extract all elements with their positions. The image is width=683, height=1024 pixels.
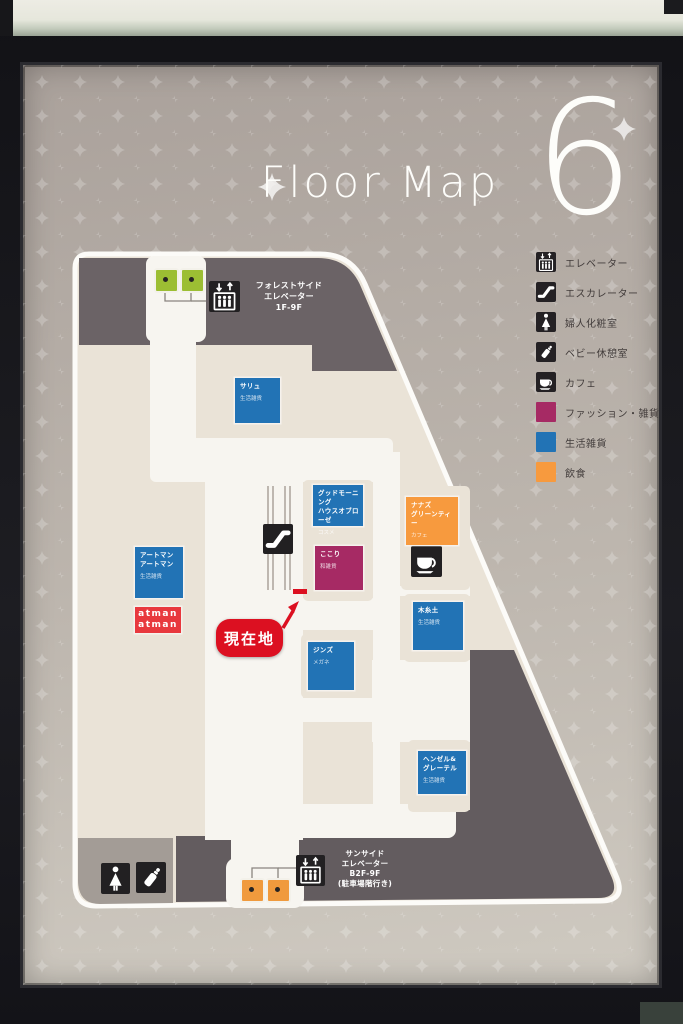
store-kiitotsuchi: 木糸土 生活雑貨 xyxy=(413,602,463,650)
store-category: 生活雑貨 xyxy=(240,394,278,402)
atman-logo-box: atman atman xyxy=(135,607,181,633)
legend-item-cafe: カフェ xyxy=(536,372,660,392)
baby-room-icon xyxy=(136,862,166,893)
legend-label: エスカレーター xyxy=(565,285,639,300)
store-name: サリュ xyxy=(240,382,278,391)
store-category: コスメ xyxy=(318,528,361,536)
store-category: 生活雑貨 xyxy=(423,776,464,784)
cafe-icon xyxy=(536,372,556,392)
store-name: ヘンゼル& グレーテル xyxy=(423,755,464,773)
elevator-car-green xyxy=(180,268,205,293)
store-goodmorning-house-of-rose: グッドモーニング ハウスオブローゼ コスメ xyxy=(313,485,363,526)
legend-label: ファッション・雑貨 xyxy=(565,405,660,420)
legend-label: 飲食 xyxy=(565,465,586,480)
legend-item-powder-room: 婦人化粧室 xyxy=(536,312,660,332)
legend: エレベーター エスカレーター 婦人化粧室 xyxy=(536,252,660,492)
legend-label: 婦人化粧室 xyxy=(565,315,618,330)
legend-label: カフェ xyxy=(565,375,597,390)
elevator-car-orange xyxy=(266,878,291,903)
elevator-icon xyxy=(536,252,556,272)
fashion-color-swatch xyxy=(536,402,556,422)
store-nanas-green-tea: ナナズ グリーンティー カフェ xyxy=(406,497,458,545)
floor-map-photo: Floor Map 6 xyxy=(0,0,683,1024)
legend-item-baby-room: ベビー休憩室 xyxy=(536,342,660,362)
current-location-badge: 現在地 xyxy=(216,619,283,657)
elevator-car-orange xyxy=(240,878,265,903)
store-name: アートマン アートマン xyxy=(140,551,181,569)
powder-room-icon xyxy=(101,863,130,894)
legend-item-escalator: エスカレーター xyxy=(536,282,660,302)
store-artman-artman: アートマン アートマン 生活雑貨 xyxy=(135,547,183,598)
escalator-icon xyxy=(536,282,556,302)
forest-side-elevator-label: フォレストサイド エレベーター 1F-9F xyxy=(243,281,335,313)
store-name: グッドモーニング ハウスオブローゼ xyxy=(318,489,361,525)
legend-item-elevator: エレベーター xyxy=(536,252,660,272)
store-jins: ジンズ メガネ xyxy=(308,642,354,690)
food-color-swatch xyxy=(536,462,556,482)
legend-item-fashion: ファッション・雑貨 xyxy=(536,402,660,422)
baby-room-icon xyxy=(536,342,556,362)
cafe-icon xyxy=(411,546,442,577)
store-category: 和雑貨 xyxy=(320,562,361,570)
store-category: メガネ xyxy=(313,658,352,666)
elevator-icon xyxy=(296,855,325,886)
legend-label: ベビー休憩室 xyxy=(565,345,628,360)
store-kokori: ここり 和雑貨 xyxy=(315,546,363,590)
elevator-car-green xyxy=(154,268,179,293)
legend-item-lifestyle: 生活雑貨 xyxy=(536,432,660,452)
elevator-icon xyxy=(209,281,240,312)
store-name: ジンズ xyxy=(313,646,352,655)
store-category: カフェ xyxy=(411,531,456,539)
store-name: 木糸土 xyxy=(418,606,461,615)
legend-label: 生活雑貨 xyxy=(565,435,607,450)
store-hansel-and-gretel: ヘンゼル& グレーテル 生活雑貨 xyxy=(418,751,466,794)
sun-side-elevator-label: サンサイド エレベーター B2F-9F (駐車場階行き) xyxy=(325,849,405,890)
legend-item-food: 飲食 xyxy=(536,462,660,482)
lifestyle-color-swatch xyxy=(536,432,556,452)
powder-room-icon xyxy=(536,312,556,332)
escalator-icon xyxy=(263,524,293,554)
store-category: 生活雑貨 xyxy=(140,572,181,580)
location-marker-dash xyxy=(293,589,307,594)
store-category: 生活雑貨 xyxy=(418,618,461,626)
store-salut: サリュ 生活雑貨 xyxy=(235,378,280,423)
store-name: ここり xyxy=(320,550,361,559)
legend-label: エレベーター xyxy=(565,255,628,270)
store-name: ナナズ グリーンティー xyxy=(411,501,456,528)
